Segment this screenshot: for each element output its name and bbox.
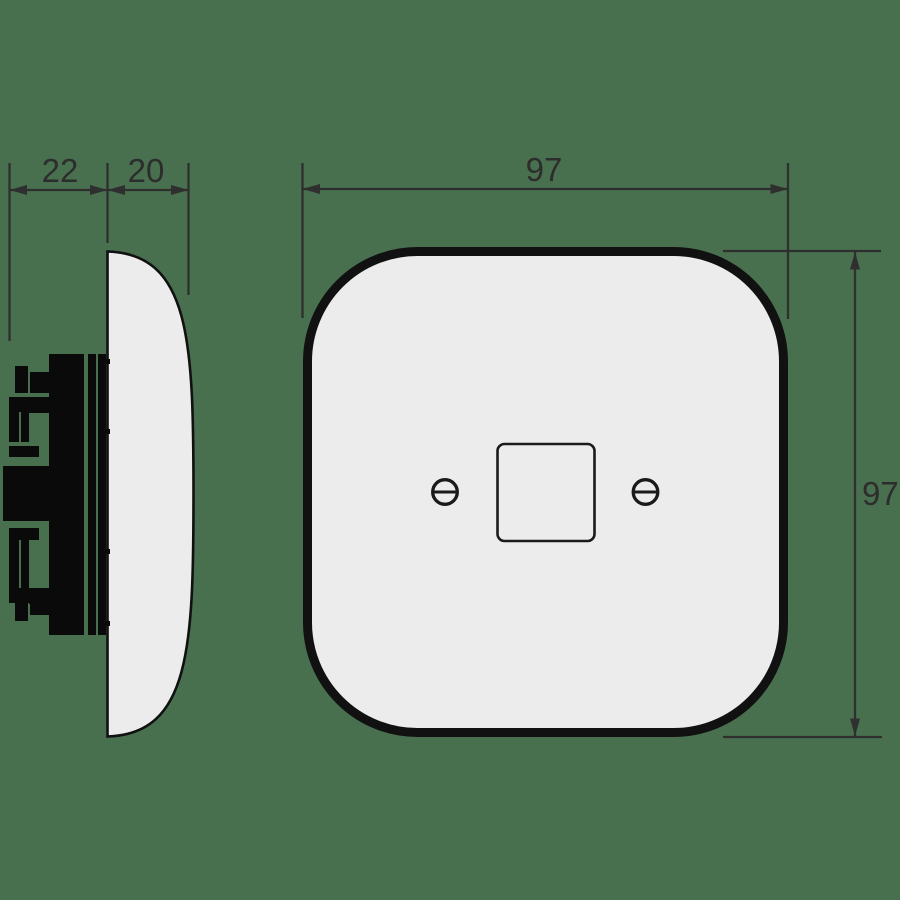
mech-terminal-part [9,528,39,540]
screw-right [633,480,658,505]
mech-terminal-part [9,412,19,442]
dimension-label-mechanism-depth: 22 [42,152,79,189]
drawing-canvas: 22 20 97 97 [0,0,900,900]
dimension-label-plate-height: 97 [862,475,899,512]
mech-claw-tick [99,429,110,434]
mech-terminal-part [30,372,49,393]
arrowhead [850,719,860,737]
mech-terminal-part [21,540,29,592]
mech-center-block [3,466,49,521]
mech-frame-bar-inner [88,354,96,635]
mech-terminal-part [9,446,39,457]
mech-terminal-part [15,366,28,393]
mech-main-body [49,354,84,635]
dimension-label-plate-width: 97 [526,151,563,188]
mech-claw-tick [99,359,110,364]
front-view [308,252,784,733]
arrowhead [303,184,321,194]
switch-cutout [498,444,595,541]
arrowhead [108,185,126,195]
arrowhead [850,252,860,270]
arrowhead [10,185,28,195]
arrowhead [771,184,789,194]
mech-terminal-part [15,593,28,621]
mech-terminal-part [30,595,49,615]
arrowhead [171,185,189,195]
mech-terminal-part [21,412,29,442]
dimension-label-plate-depth: 20 [128,152,165,189]
mech-claw-tick [99,621,110,626]
mech-claw-tick [99,549,110,554]
mech-terminal-part [9,397,30,412]
mechanism-silhouette [3,354,106,635]
mech-frame-bar-outer [98,354,106,635]
arrowhead [90,185,108,195]
plate-side-profile [108,252,194,737]
mech-terminal-part [9,540,19,592]
screw-left [433,480,458,505]
mech-terminal-part [29,397,49,413]
side-view [3,252,194,737]
technical-drawing-svg: 22 20 97 97 [0,0,900,900]
